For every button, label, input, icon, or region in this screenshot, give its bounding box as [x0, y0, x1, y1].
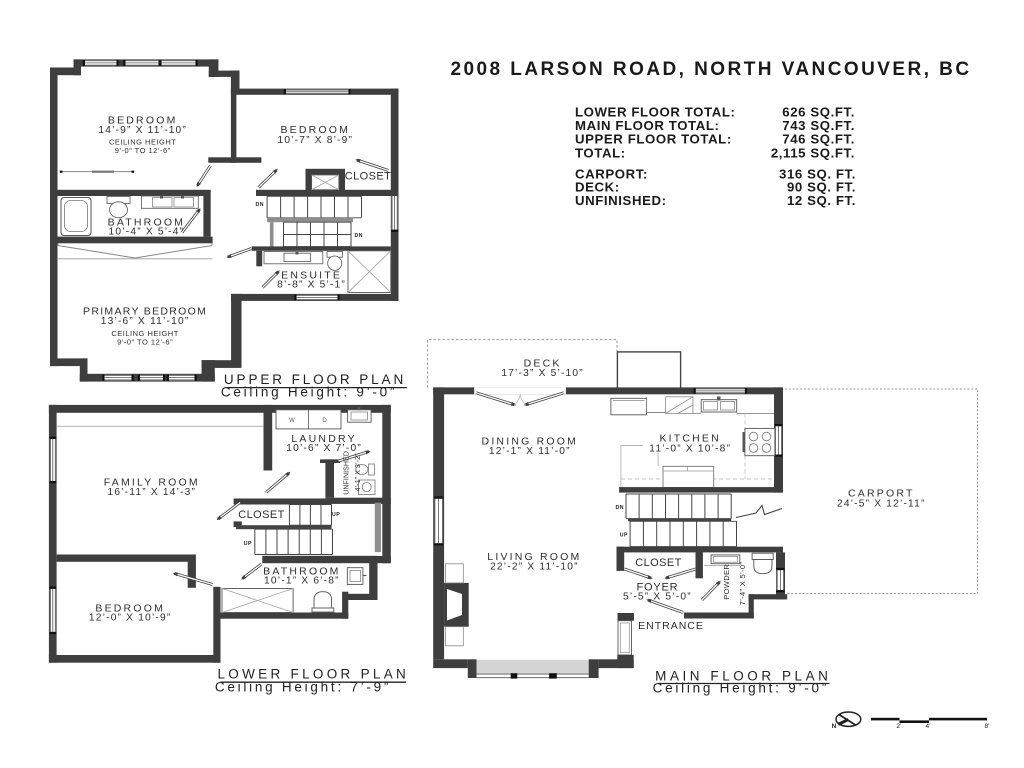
svg-text:UP: UP: [244, 541, 252, 547]
svg-text:UNFINISHED: UNFINISHED: [344, 451, 351, 495]
svg-text:13’-6” X 11’-10”: 13’-6” X 11’-10”: [101, 316, 190, 327]
svg-text:16’-11” X 14’-3”: 16’-11” X 14’-3”: [107, 487, 196, 498]
svg-text:5’-5” X 5’-0”: 5’-5” X 5’-0”: [623, 591, 692, 602]
svg-text:POWDER: POWDER: [722, 564, 731, 600]
svg-text:KITCHEN: KITCHEN: [659, 432, 721, 444]
svg-text:DN: DN: [616, 505, 625, 511]
svg-text:8’: 8’: [984, 723, 990, 730]
svg-text:10’-4” X 5’-4”: 10’-4” X 5’-4”: [109, 227, 185, 238]
svg-text:ENTRANCE: ENTRANCE: [638, 620, 704, 632]
svg-text:9’-0” TO 12’-6”: 9’-0” TO 12’-6”: [117, 337, 173, 346]
svg-text:12’-1” X 11’-0”: 12’-1” X 11’-0”: [489, 446, 571, 457]
svg-text:UP: UP: [332, 512, 340, 518]
svg-text:DN: DN: [355, 233, 364, 239]
svg-text:4’-1” X 3’-2”: 4’-1” X 3’-2”: [355, 453, 362, 491]
svg-text:2008 LARSON ROAD, NORTH VANCOU: 2008 LARSON ROAD, NORTH VANCOUVER, BC: [450, 59, 971, 80]
svg-text:CLOSET: CLOSET: [238, 509, 284, 521]
svg-text:Ceiling Height: 9’-0”: Ceiling Height: 9’-0”: [653, 680, 829, 695]
svg-text:17’-3” X 5’-10”: 17’-3” X 5’-10”: [501, 368, 584, 379]
svg-text:7’-4” X 5’-0”: 7’-4” X 5’-0”: [738, 562, 747, 606]
svg-text:10’-7” X 8’-9”: 10’-7” X 8’-9”: [277, 135, 353, 146]
svg-text:11’-0” X 10’-8”: 11’-0” X 10’-8”: [649, 444, 731, 455]
svg-text:UNFINISHED:: UNFINISHED:: [575, 193, 667, 208]
svg-text:10’-6” X 7’-0”: 10’-6” X 7’-0”: [286, 443, 362, 454]
svg-text:CLOSET: CLOSET: [635, 557, 681, 569]
svg-text:D: D: [322, 418, 327, 424]
svg-text:22’-2” X 11’-10”: 22’-2” X 11’-10”: [490, 562, 579, 573]
svg-text:N: N: [832, 723, 837, 730]
svg-text:24’-5” X 12’-11”: 24’-5” X 12’-11”: [837, 499, 926, 510]
svg-text:14’-9” X 11’-10”: 14’-9” X 11’-10”: [98, 125, 187, 136]
svg-text:9’-0” TO 12’-6”: 9’-0” TO 12’-6”: [115, 146, 171, 155]
svg-text:8’-8” X 5’-1”: 8’-8” X 5’-1”: [277, 280, 346, 291]
svg-text:DN: DN: [256, 202, 265, 208]
svg-text:4’: 4’: [925, 723, 931, 730]
svg-text:12 SQ. FT.: 12 SQ. FT.: [787, 193, 856, 208]
svg-text:Ceiling Height: 9’-0”: Ceiling Height: 9’-0”: [221, 385, 397, 400]
svg-text:UP: UP: [620, 533, 628, 539]
svg-text:Ceiling Height: 7’-9”: Ceiling Height: 7’-9”: [215, 680, 391, 695]
svg-text:10’-1” X 6’-8”: 10’-1” X 6’-8”: [264, 575, 340, 586]
svg-text:2,115 SQ.FT.: 2,115 SQ.FT.: [771, 145, 855, 160]
svg-text:12’-0” X 10’-9”: 12’-0” X 10’-9”: [89, 613, 172, 624]
svg-text:CLOSET: CLOSET: [345, 171, 391, 183]
svg-text:2’: 2’: [896, 723, 902, 730]
svg-text:W: W: [289, 418, 295, 424]
svg-text:TOTAL:: TOTAL:: [575, 145, 626, 160]
